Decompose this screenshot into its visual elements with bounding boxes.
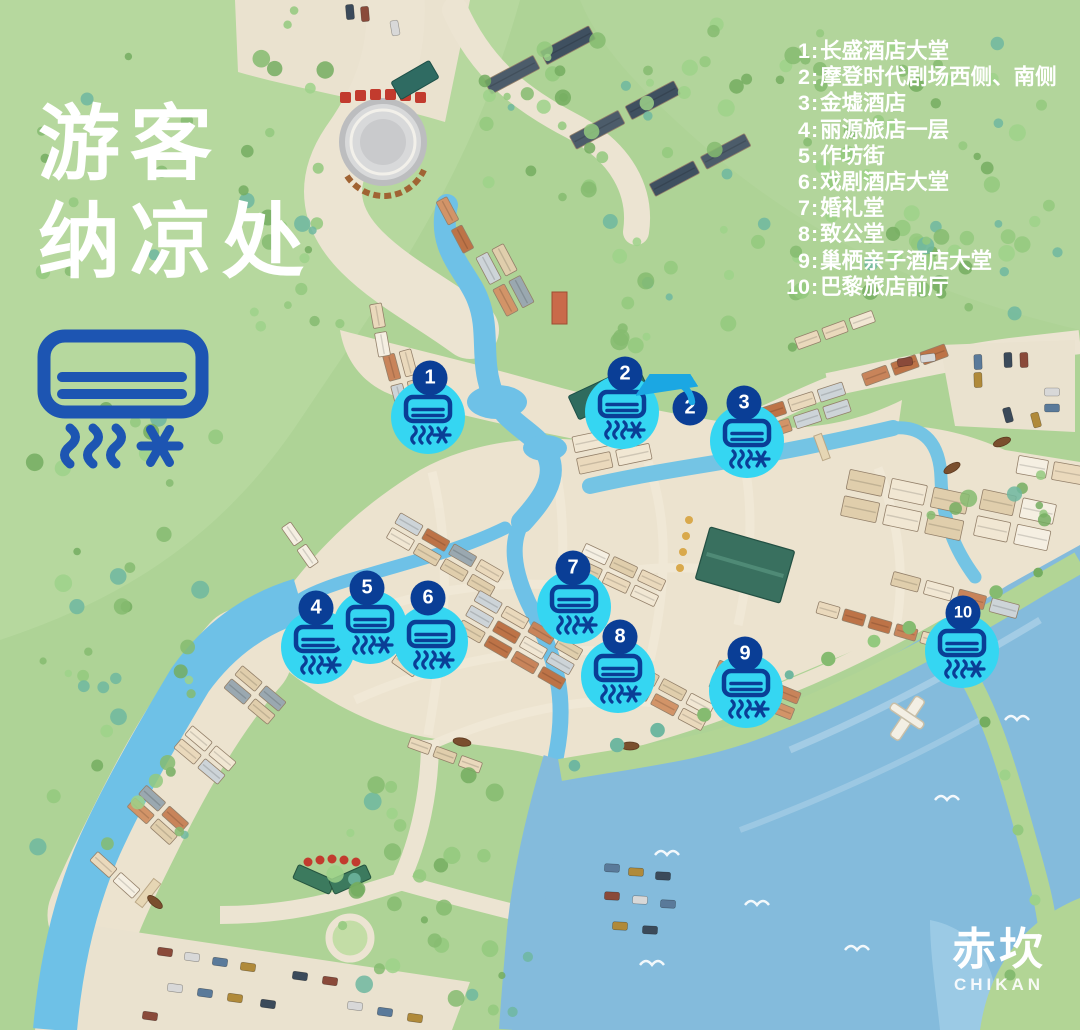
legend-item-number: 5 (783, 143, 810, 169)
legend-item-number: 10 (783, 274, 810, 300)
legend-item-number: 4 (783, 117, 810, 143)
legend-item-number: 3 (783, 90, 810, 116)
marker-number-badge: 5 (350, 571, 385, 606)
legend-item-name: 婚礼堂 (820, 195, 885, 221)
legend-item-number: 8 (783, 221, 810, 247)
legend-item-colon: : (811, 64, 818, 90)
legend-item-name: 丽源旅店一层 (820, 117, 949, 143)
legend-item-number: 2 (783, 64, 810, 90)
legend-item: 5 : 作坊街 (783, 143, 1057, 169)
marker-number-badge: 4 (299, 591, 334, 626)
legend-item-colon: : (811, 274, 818, 300)
legend-item-colon: : (811, 90, 818, 116)
legend-item-colon: : (811, 169, 818, 195)
legend-item-number: 7 (783, 195, 810, 221)
legend-item: 6 : 戏剧酒店大堂 (783, 169, 1057, 195)
legend-item: 2 : 摩登时代剧场西侧、南侧 (783, 64, 1057, 90)
heat-waves-icon (412, 427, 433, 443)
legend-item-name: 金墟酒店 (820, 90, 906, 116)
heat-waves-icon (730, 701, 751, 717)
ac-unit-marker (394, 605, 468, 679)
legend-item-number: 1 (783, 38, 810, 64)
snowflake-icon (628, 423, 644, 437)
poster-title: 游客 纳凉处 (38, 96, 314, 293)
marker-number-badge: 1 (413, 361, 448, 396)
marker-number-badge: 10 (946, 596, 981, 631)
tourist-map-poster: 游客 纳凉处 1 : 长盛酒店大堂 2 : 摩登时代剧场西侧、南侧 (0, 0, 1080, 1030)
legend-item-name: 巢栖亲子酒店大堂 (820, 248, 992, 274)
snowflake-icon (624, 687, 640, 701)
logo-english: CHIKAN (952, 975, 1046, 995)
legend-item-name: 致公堂 (820, 221, 885, 247)
legend-item-colon: : (811, 38, 818, 64)
legend-item-colon: : (811, 117, 818, 143)
heat-waves-icon (558, 617, 579, 633)
legend-item-name: 摩登时代剧场西侧、南侧 (820, 64, 1057, 90)
title-line-2: 纳凉处 (38, 194, 314, 292)
legend-item-name: 戏剧酒店大堂 (820, 169, 949, 195)
legend-item-name: 长盛酒店大堂 (820, 38, 949, 64)
snowflake-icon (753, 452, 769, 466)
heat-waves-icon (415, 652, 436, 668)
snowflake-icon (434, 428, 450, 442)
arrow-to-location-2-icon (636, 374, 698, 408)
legend-item-number: 9 (783, 248, 810, 274)
snowflake-icon (752, 702, 768, 716)
legend-item-colon: : (811, 195, 818, 221)
legend-item: 3 : 金墟酒店 (783, 90, 1057, 116)
legend-item-name: 巴黎旅店前厅 (820, 274, 949, 300)
chikan-logo: 赤坎 CHIKAN (952, 926, 1046, 995)
legend-item-colon: : (811, 248, 818, 274)
legend-list: 1 : 长盛酒店大堂 2 : 摩登时代剧场西侧、南侧 3 : 金墟酒店 4 : … (783, 38, 1057, 300)
legend-item: 8 : 致公堂 (783, 221, 1057, 247)
snowflake-icon (968, 662, 984, 676)
heat-waves-icon (302, 657, 323, 673)
heat-waves-icon (606, 422, 627, 438)
air-conditioner-icon (394, 605, 468, 679)
snowflake-icon (141, 430, 179, 463)
heat-waves-icon (354, 637, 375, 653)
legend-item: 1 : 长盛酒店大堂 (783, 38, 1057, 64)
legend-item: 9 : 巢栖亲子酒店大堂 (783, 248, 1057, 274)
heat-waves-icon (946, 661, 967, 677)
snowflake-icon (437, 653, 453, 667)
legend-item-colon: : (811, 143, 818, 169)
snowflake-icon (376, 638, 392, 652)
marker-number-badge: 8 (603, 620, 638, 655)
legend-item: 7 : 婚礼堂 (783, 195, 1057, 221)
heat-waves-icon (731, 451, 752, 467)
legend-item-colon: : (811, 221, 818, 247)
marker-number-badge: 7 (556, 551, 591, 586)
marker-number-badge: 6 (411, 581, 446, 616)
logo-chinese: 赤坎 (952, 926, 1046, 974)
legend-item: 10 : 巴黎旅店前厅 (783, 274, 1057, 300)
heat-waves-icon (602, 686, 623, 702)
marker-number-badge: 9 (728, 637, 763, 672)
legend-item: 4 : 丽源旅店一层 (783, 117, 1057, 143)
heat-waves-icon (65, 428, 122, 464)
marker-number-badge: 3 (727, 386, 762, 421)
legend-item-number: 6 (783, 169, 810, 195)
snowflake-icon (580, 618, 596, 632)
legend-item-name: 作坊街 (820, 143, 885, 169)
title-line-1: 游客 (38, 96, 314, 194)
air-conditioner-icon (36, 328, 211, 473)
